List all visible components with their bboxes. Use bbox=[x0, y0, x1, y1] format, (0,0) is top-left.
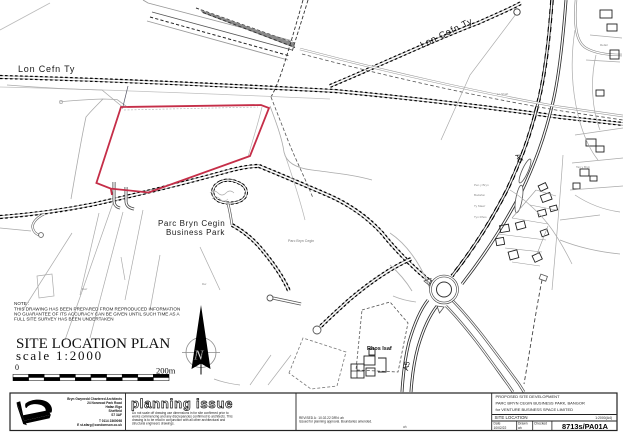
svg-text:10/02/22: 10/02/22 bbox=[494, 426, 507, 430]
svg-text:Rhos Isaf: Rhos Isaf bbox=[367, 346, 392, 352]
svg-text:Ln Shaft: Ln Shaft bbox=[497, 92, 508, 96]
svg-text:Dw: Dw bbox=[202, 282, 207, 286]
svg-text:SITE LOCATION: SITE LOCATION bbox=[495, 415, 528, 420]
svg-text:S7 3AF: S7 3AF bbox=[111, 413, 122, 417]
svg-text:Checked: Checked bbox=[534, 422, 547, 426]
svg-text:Refail: Refail bbox=[600, 43, 608, 47]
svg-text:Pen y Bryn: Pen y Bryn bbox=[474, 183, 489, 187]
svg-text:ah: ah bbox=[403, 425, 407, 429]
svg-text:Parc Bryn Cegin: Parc Bryn Cegin bbox=[158, 219, 225, 228]
svg-text:ah: ah bbox=[518, 426, 522, 430]
svg-text:Tan y Bryn: Tan y Bryn bbox=[576, 165, 591, 169]
svg-text:Drawn: Drawn bbox=[518, 422, 528, 426]
svg-text:for VENTURE BUSINESS SPACE LIM: for VENTURE BUSINESS SPACE LIMITED bbox=[496, 407, 574, 412]
svg-text:NOTE :: NOTE : bbox=[14, 301, 29, 306]
svg-text:PROPOSED SITE DEVELOPMENT: PROPOSED SITE DEVELOPMENT bbox=[496, 394, 561, 399]
svg-text:structural engineers drawings.: structural engineers drawings. bbox=[132, 422, 175, 426]
svg-text:Issued for planning approval.: Issued for planning approval. Boundaries… bbox=[299, 420, 372, 424]
svg-text:E st.afarg@condomson.co.uk: E st.afarg@condomson.co.uk bbox=[77, 423, 122, 427]
svg-text:Lon Cefn Ty: Lon Cefn Ty bbox=[418, 16, 474, 50]
svg-text:1:2000(A4): 1:2000(A4) bbox=[595, 416, 612, 420]
svg-text:Ty Mawr: Ty Mawr bbox=[474, 204, 485, 208]
svg-text:N: N bbox=[193, 349, 204, 364]
svg-text:PARC BRYN CEGIN BUSINESS PARK,: PARC BRYN CEGIN BUSINESS PARK, BANGOR bbox=[496, 401, 585, 406]
svg-text:A5: A5 bbox=[401, 361, 412, 372]
svg-text:Date: Date bbox=[494, 422, 501, 426]
svg-text:Business Park: Business Park bbox=[166, 228, 225, 237]
svg-text:scale 1:2000: scale 1:2000 bbox=[16, 348, 103, 363]
svg-text:Parc Bryn Cegin: Parc Bryn Cegin bbox=[288, 239, 314, 243]
svg-text:8713s/PA01A: 8713s/PA01A bbox=[562, 422, 609, 431]
svg-text:Bodafon: Bodafon bbox=[474, 193, 486, 197]
svg-text:Lon Cefn Ty: Lon Cefn Ty bbox=[18, 64, 75, 74]
svg-text:0: 0 bbox=[15, 363, 19, 372]
svg-text:FULL SITE SURVEY HAS BEEN: FULL SITE SURVEY HAS BEEN UNDERTAKEN bbox=[14, 317, 114, 322]
svg-text:Dwr: Dwr bbox=[82, 287, 87, 291]
svg-text:200m: 200m bbox=[156, 366, 176, 376]
svg-text:Tyn Rhos: Tyn Rhos bbox=[474, 215, 487, 219]
svg-text:planning issue: planning issue bbox=[131, 396, 233, 411]
